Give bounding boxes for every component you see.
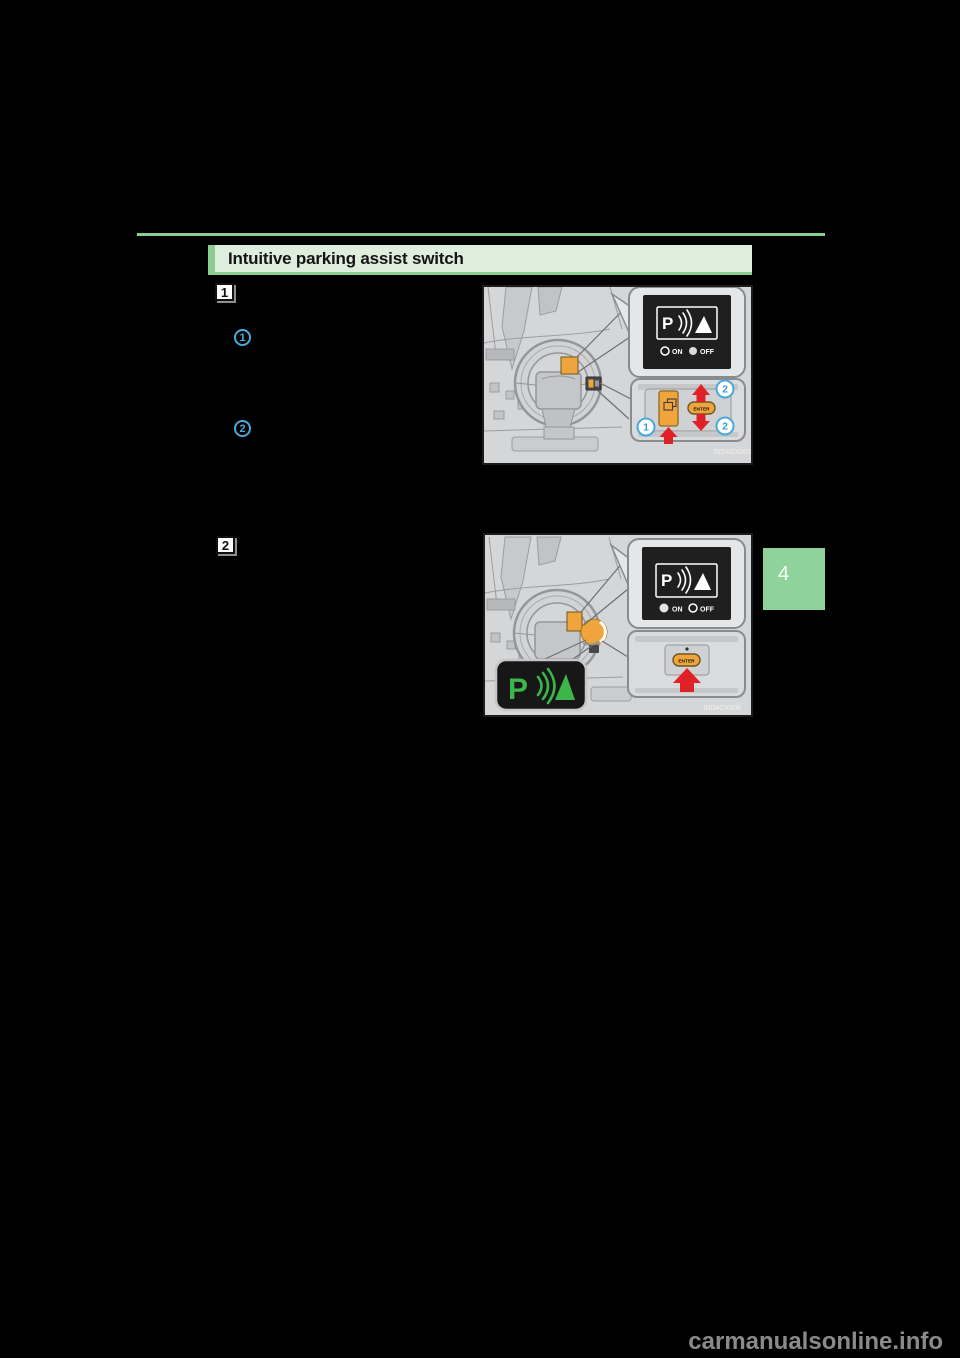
section-title: Intuitive parking assist switch	[228, 249, 464, 269]
svg-text:P: P	[661, 571, 672, 590]
margin-callout-2: 2	[234, 420, 251, 437]
figure-callout-2-down-label: 2	[722, 421, 728, 433]
enter-button: ENTER	[688, 402, 715, 414]
margin-callout-1: 1	[234, 329, 251, 346]
multi-info-display-highlight	[561, 357, 578, 374]
figure-callout-1: 1	[638, 419, 655, 436]
svg-text:P: P	[508, 673, 528, 706]
parking-assist-indicator-badge: P	[496, 660, 586, 710]
figure-callout-1-label: 1	[643, 422, 649, 434]
meter-control-switch-highlight	[586, 377, 601, 390]
on-label: ON	[672, 349, 683, 356]
svg-text:P: P	[662, 314, 673, 333]
display-inset: P ON OFF	[611, 539, 745, 628]
enter-button-label: ENTER	[678, 659, 695, 665]
steering-switch-inset: ENTER 2 2 1	[631, 379, 745, 444]
off-label: OFF	[700, 349, 715, 356]
figure-2-parking-assist-on: P ON OFF ENTER P	[483, 533, 753, 717]
section-divider-rule	[137, 233, 825, 236]
figure-callout-2-up-label: 2	[722, 384, 728, 396]
multi-info-display-highlight	[567, 612, 582, 631]
display-inset: P ON OFF	[612, 287, 745, 377]
enter-button: ENTER	[673, 654, 700, 666]
figure-callout-2-down: 2	[717, 418, 734, 435]
step-number-box-1: 1	[215, 283, 234, 301]
on-radio-icon	[660, 604, 669, 613]
step2-label: 2	[222, 538, 229, 553]
display-change-switch	[659, 391, 678, 426]
chapter-tab: 4	[763, 548, 825, 610]
step-number-box-2: 2	[216, 536, 235, 554]
figure-2-code: IND4GX006	[703, 705, 741, 712]
on-label: ON	[672, 607, 683, 614]
figure-1-parking-assist-switch: P ON OFF ENTER	[482, 285, 753, 465]
enter-switch-inset: ENTER	[628, 631, 745, 697]
off-label: OFF	[700, 607, 715, 614]
figure-callout-2-up: 2	[717, 381, 734, 398]
figure-1-illustration: P ON OFF ENTER	[482, 285, 753, 465]
margin-callout-1-label: 1	[239, 332, 245, 344]
watermark-text: carmanualsonline.info	[688, 1328, 943, 1356]
manual-page: { "header": { "title": "Intuitive parkin…	[0, 0, 960, 1358]
chapter-tab-label: 4	[778, 563, 789, 585]
off-radio-icon	[689, 347, 697, 355]
enter-button-label: ENTER	[693, 407, 710, 413]
figure-2-illustration: P ON OFF ENTER P	[483, 533, 753, 717]
margin-callout-2-label: 2	[239, 423, 245, 435]
step1-label: 1	[221, 285, 228, 300]
figure-1-code: IND4GX005	[713, 449, 751, 456]
section-header: Intuitive parking assist switch	[208, 245, 752, 275]
